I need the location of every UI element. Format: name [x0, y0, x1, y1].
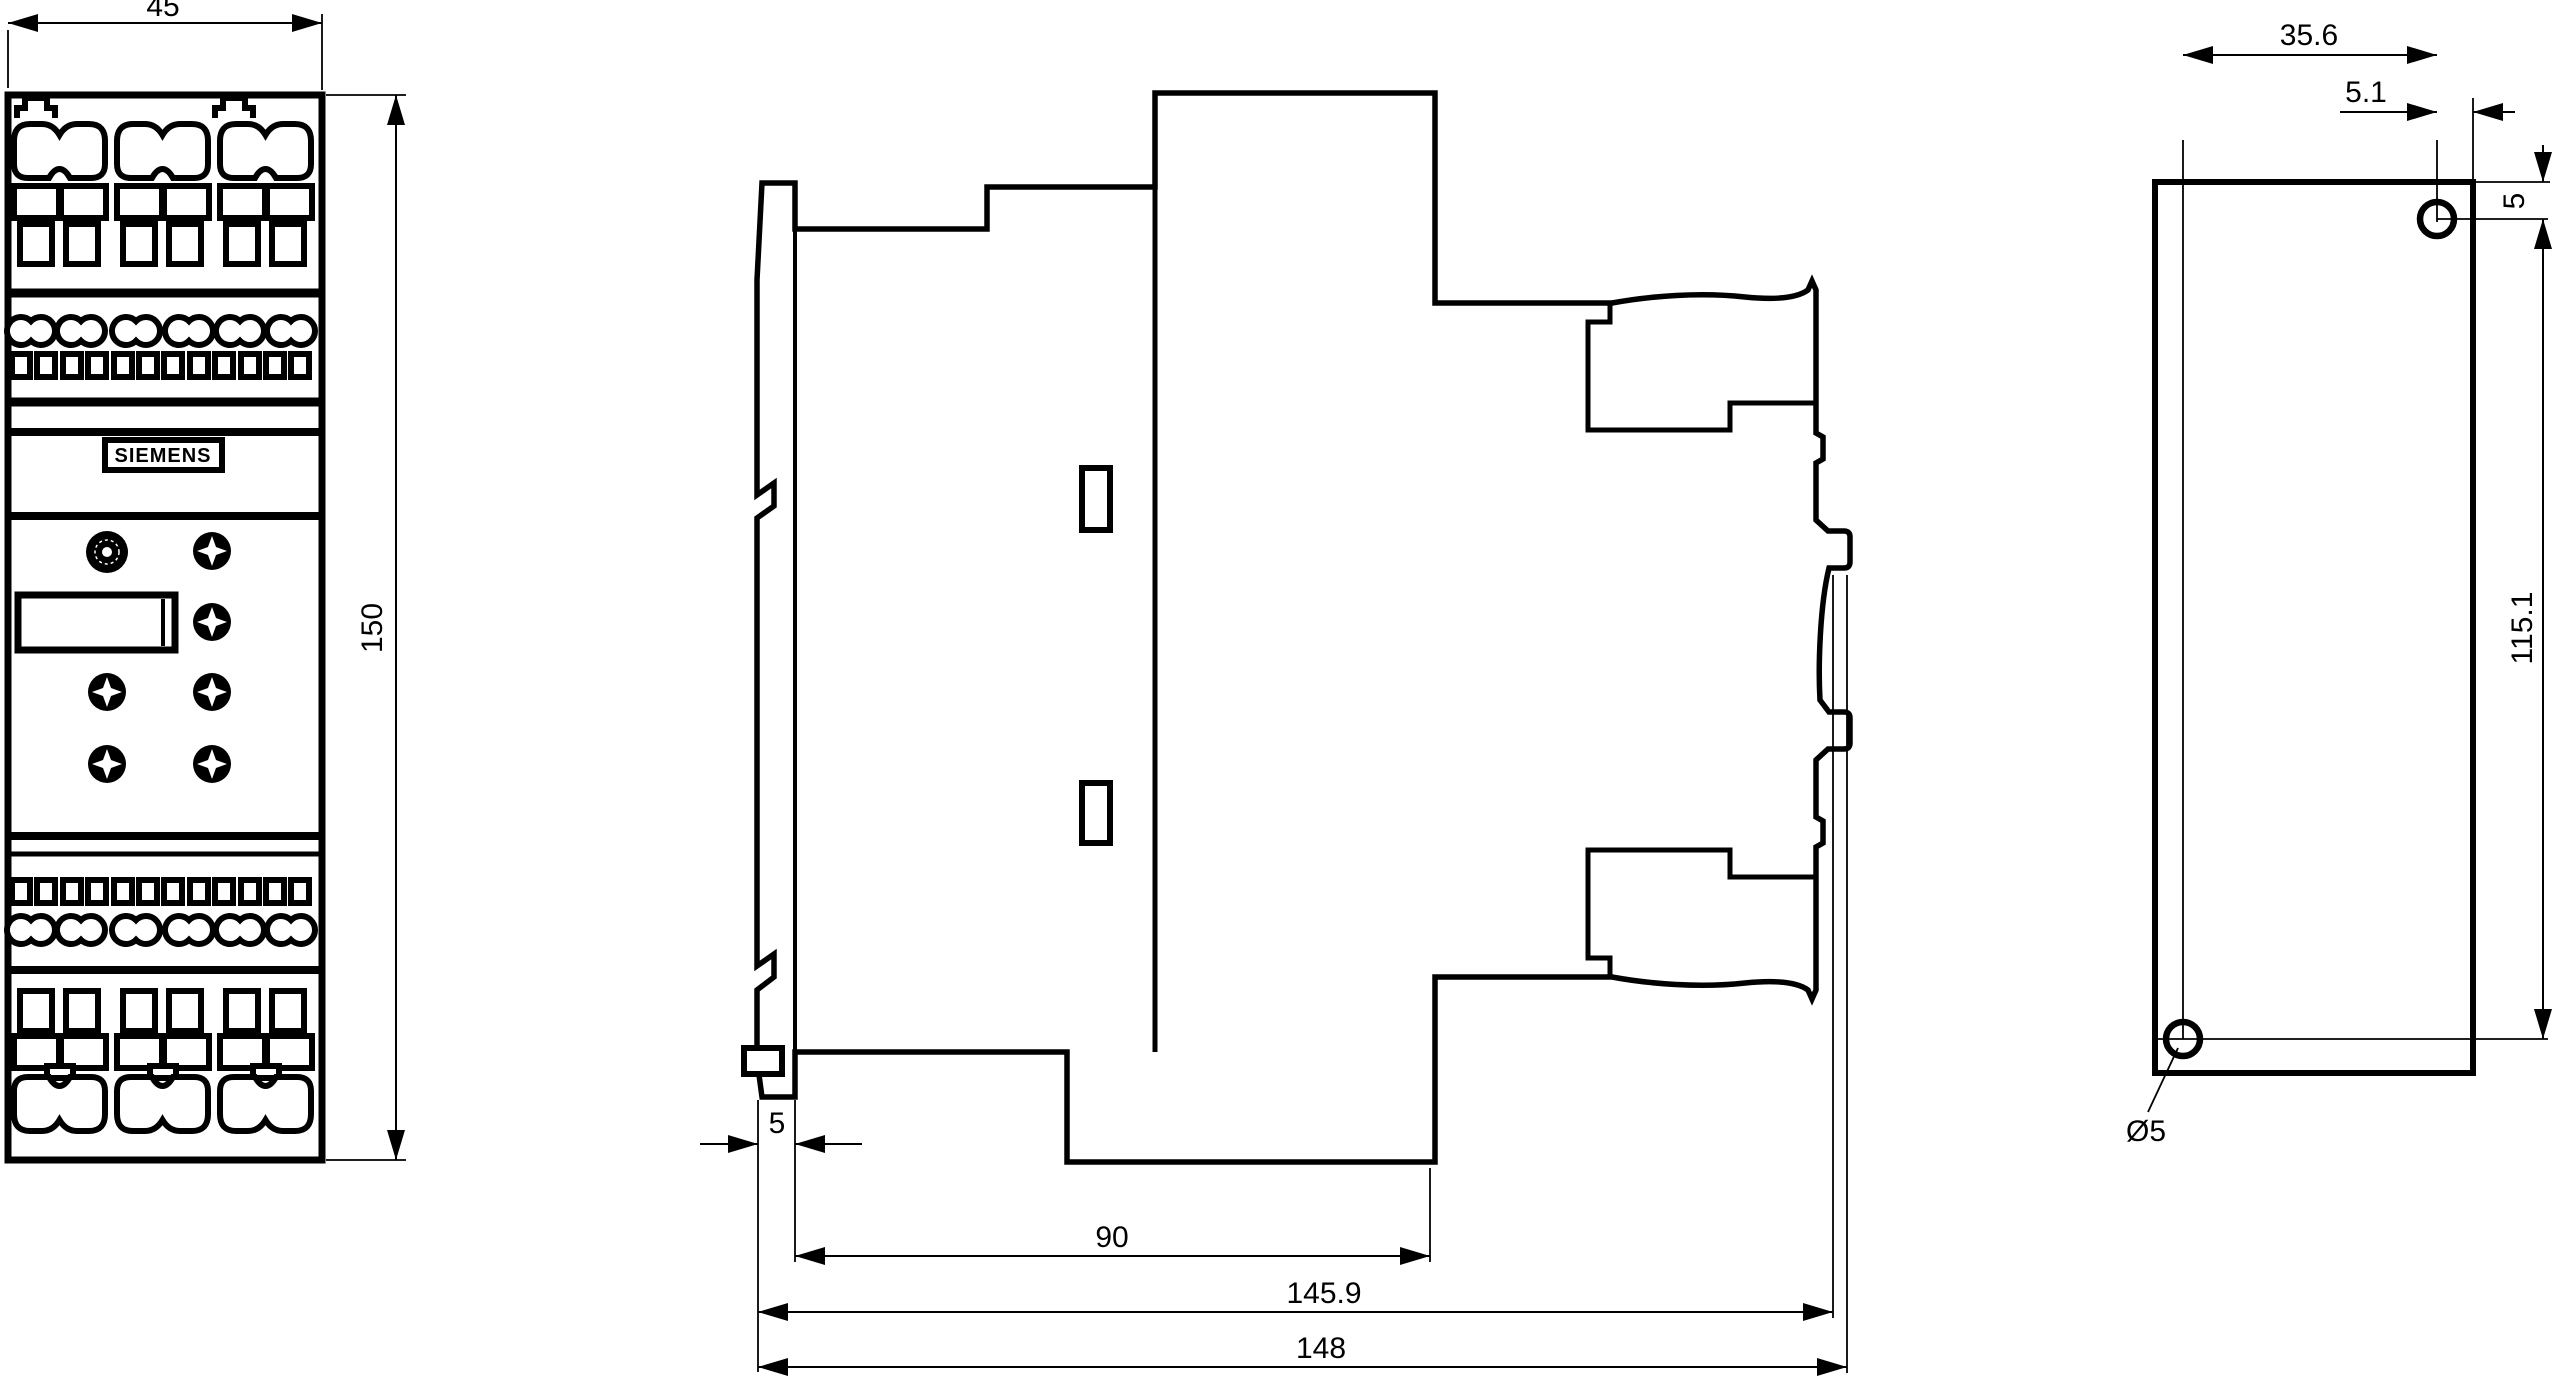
dim-arrow-right: [2407, 46, 2437, 64]
dim-arrow-left: [758, 1303, 788, 1321]
din-clip-foot: [744, 1048, 782, 1074]
top-clip-tab-right: [215, 98, 253, 118]
side-view: [744, 93, 1850, 1162]
dim-arrow-right: [2407, 103, 2437, 121]
dim-arrow-right: [292, 14, 322, 32]
dim-arrow-right: [1817, 1358, 1847, 1376]
adjustment-screw-icon: [193, 745, 231, 783]
drawing-canvas: SIEMENS: [0, 0, 2553, 1381]
adjustment-screw-icon: [88, 745, 126, 783]
terminal-opening: [117, 1077, 208, 1131]
terminal-opening: [117, 124, 208, 178]
side-vent-slot: [1082, 468, 1110, 530]
dimension-front-width: 45: [8, 0, 322, 90]
dim-arrow-right: [1400, 1247, 1430, 1265]
adjustment-screw-icon: [88, 673, 126, 711]
dim-label-hole-spacing: 115.1: [2506, 592, 2539, 665]
dimension-body-depth: 90: [795, 1168, 1430, 1265]
dim-label-depth-minor: 145.9: [1286, 1277, 1361, 1310]
dim-label-depth-total: 148: [1296, 1332, 1346, 1365]
dim-arrow-right: [1803, 1303, 1833, 1321]
top-terminal-row: [14, 124, 311, 178]
dim-arrow-left: [795, 1247, 825, 1265]
dim-label-hole-edge-offset: 5.1: [2345, 76, 2387, 109]
dim-arrow-left: [8, 14, 38, 32]
dim-arrow-up: [387, 95, 405, 125]
dimension-hole-edge-offset: 5.1: [2340, 76, 2515, 121]
brand-label: SIEMENS: [114, 445, 211, 467]
side-profile-outline: [757, 93, 1850, 1162]
brand-badge: SIEMENS: [105, 440, 222, 470]
terminal-opening: [220, 124, 311, 178]
dim-label-clip-width: 5: [769, 1107, 786, 1140]
dim-arrow-left: [758, 1358, 788, 1376]
dimension-front-height: 150: [326, 95, 406, 1160]
rear-panel-outline: [2155, 182, 2473, 1073]
dim-arrow-down: [387, 1130, 405, 1160]
adjustment-screw-icon: [193, 532, 231, 570]
dim-arrow-left: [795, 1135, 825, 1153]
led-indicator: [86, 531, 128, 573]
bottom-terminal-row: [14, 1066, 311, 1131]
dim-arrow-left: [2183, 46, 2213, 64]
display-window: [18, 595, 175, 650]
dim-arrow-down: [2534, 1009, 2552, 1039]
side-vent-slot: [1082, 783, 1110, 843]
dimension-hole-offset: 35.6: [2183, 19, 2437, 64]
dim-arrow-down: [2534, 152, 2552, 182]
rear-view: [2155, 98, 2550, 1073]
terminal-opening: [14, 1077, 105, 1131]
adjustment-screw-icon: [193, 603, 231, 641]
terminal-opening: [220, 1077, 311, 1131]
front-view: SIEMENS: [7, 95, 322, 1160]
dim-label-front-width: 45: [146, 0, 179, 23]
top-terminal-rects: [14, 186, 312, 218]
adjustment-screw-icon: [193, 673, 231, 711]
dimension-drawing: SIEMENS: [0, 0, 2553, 1381]
dim-label-hole-offset: 35.6: [2280, 19, 2338, 52]
dimension-clip-width: 5: [700, 1100, 862, 1372]
dim-arrow-right: [728, 1135, 758, 1153]
dim-label-hole-diameter: Ø5: [2126, 1115, 2166, 1148]
dim-label-body-depth: 90: [1095, 1221, 1128, 1254]
dim-arrow-left: [2473, 103, 2503, 121]
dim-label-hole-top-offset: 5: [2498, 193, 2531, 210]
dim-label-front-height: 150: [356, 603, 389, 653]
dimension-hole-spacing: 115.1: [2506, 219, 2552, 1039]
terminal-opening: [14, 124, 105, 178]
top-clip-tab-left: [17, 98, 55, 118]
